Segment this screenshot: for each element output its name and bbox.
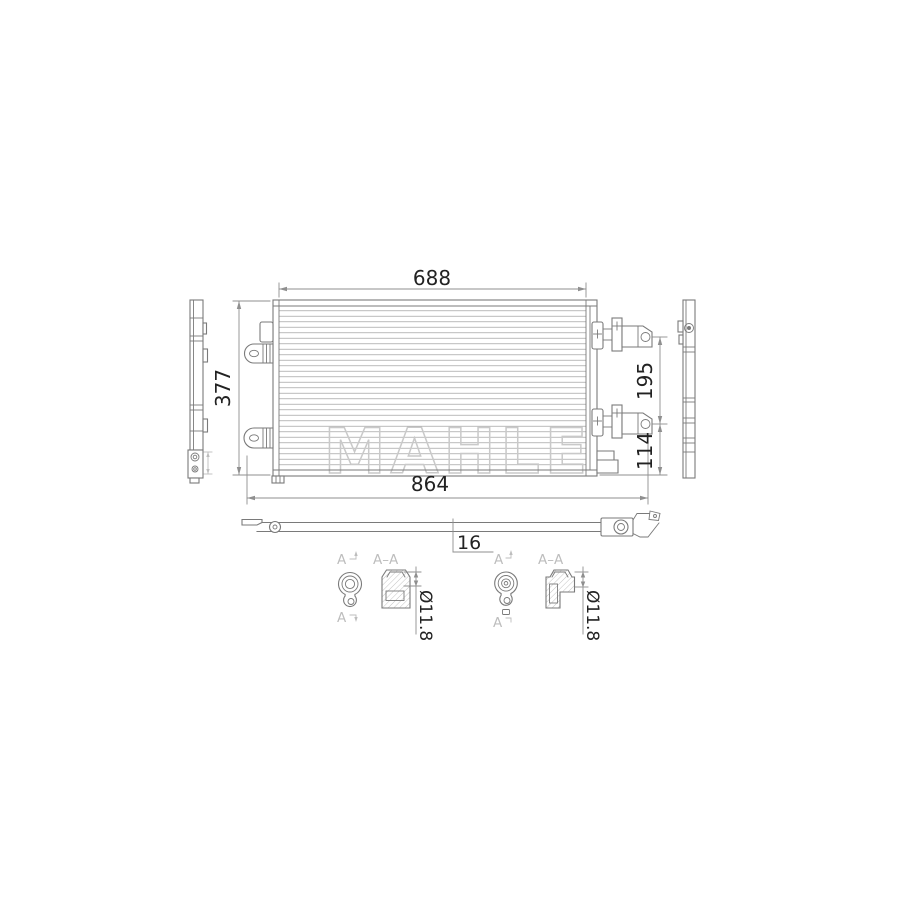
upper-left-bracket (245, 344, 273, 363)
brand-watermark: MAHLE (324, 415, 592, 488)
upper-left-tab (260, 322, 273, 342)
dim-195-label: 195 (633, 362, 657, 400)
lower-left-bracket (244, 428, 273, 448)
cut-a-bottom-label-1: A (337, 610, 347, 626)
cut-a-top-label-2: A (494, 552, 504, 568)
section-aa-label-2: A–A (538, 552, 564, 568)
right-side-view (678, 300, 695, 478)
bottom-view-left-port (270, 522, 281, 533)
dimension-port-spacing: 195 (633, 337, 667, 424)
dimension-depth: 16 (453, 519, 493, 554)
dim-16-label: 16 (457, 532, 481, 554)
condenser-technical-drawing: MAHLE (0, 0, 900, 900)
detail-section-2: A A A–A Ø11.8 (493, 550, 602, 641)
port-section-view-1 (382, 570, 410, 608)
upper-right-bracket (592, 318, 652, 351)
bottom-left-foot (272, 476, 284, 483)
page: MAHLE (0, 0, 900, 900)
cut-a-top-label-1: A (337, 552, 347, 568)
left-side-fitting (188, 450, 203, 483)
dim-114-label: 114 (633, 432, 657, 470)
port-front-view-2 (495, 572, 518, 605)
detail-section-1: A A A–A Ø11.8 (337, 551, 435, 641)
main-front-view: MAHLE (244, 300, 652, 488)
section-aa-label-1: A–A (373, 552, 399, 568)
dim-377-label: 377 (211, 369, 235, 407)
dim-688-label: 688 (413, 266, 451, 290)
cut-a-bottom-label-2: A (493, 615, 503, 631)
bottom-right-foot (597, 451, 618, 473)
dimension-port-diameter-2: Ø11.8 (575, 567, 602, 641)
port-front-view-1 (339, 573, 362, 607)
bottom-view-left-tab (242, 520, 262, 526)
left-side-view (188, 300, 212, 483)
dim-diameter-label-2: Ø11.8 (582, 590, 602, 641)
dim-diameter-label-1: Ø11.8 (415, 590, 435, 641)
dimension-core-width: 688 (279, 266, 586, 297)
bottom-view-end-tab (649, 511, 660, 521)
bottom-view-right-port (614, 520, 628, 534)
port-section-view-2 (546, 570, 575, 608)
bottom-view (242, 511, 660, 537)
dim-864-label: 864 (411, 472, 449, 496)
side-mini-dimension (204, 452, 212, 474)
